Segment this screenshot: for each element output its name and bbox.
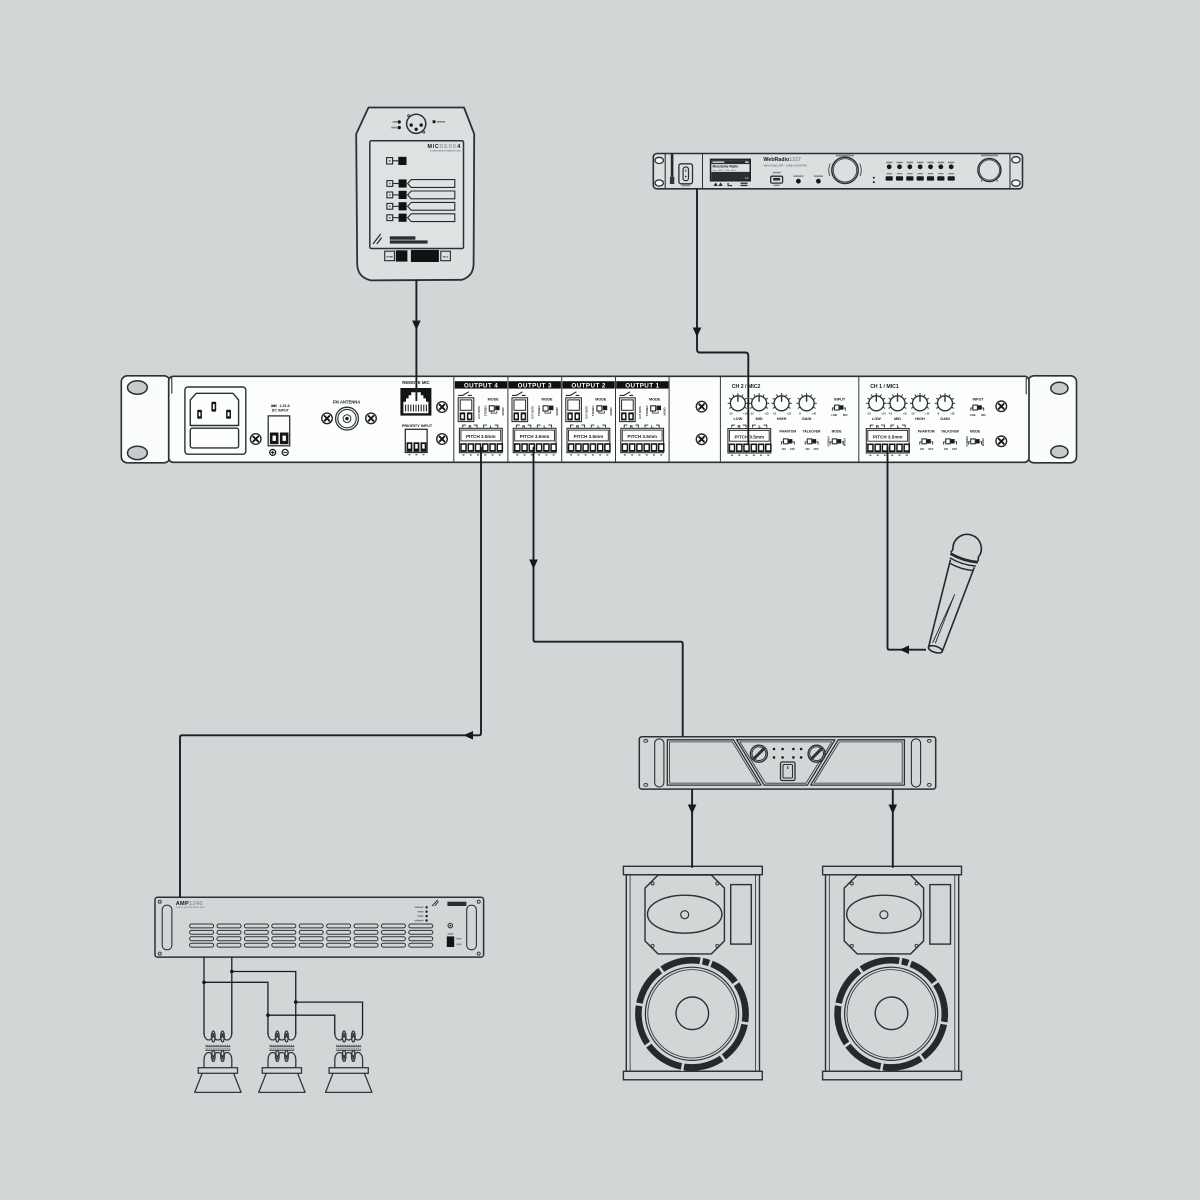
svg-text:MONO: MONO [501, 407, 505, 415]
svg-text:MIC: MIC [843, 413, 848, 417]
svg-text:4 ZONE SELECT REMOTE UNIT: 4 ZONE SELECT REMOTE UNIT [430, 149, 462, 152]
svg-text:LINE: LINE [831, 413, 837, 417]
svg-text:PUBLIC ADDRESS AMPLIFIER: PUBLIC ADDRESS AMPLIFIER [176, 906, 206, 909]
svg-text:HIGH: HIGH [777, 417, 787, 421]
svg-text:DC INPUT: DC INPUT [272, 408, 290, 412]
svg-text:OFF: OFF [814, 447, 820, 451]
svg-text:OUTPUT 3: OUTPUT 3 [518, 382, 552, 389]
svg-text:OUTPUT 2: OUTPUT 2 [571, 382, 605, 389]
svg-text:GAIN: GAIN [802, 417, 812, 421]
svg-text:MONO: MONO [842, 438, 846, 446]
svg-text:TALKOVER: TALKOVER [803, 430, 822, 434]
svg-text:Reg. 1224 - 7 Mile FM 6: Reg. 1224 - 7 Mile FM 6 [713, 170, 737, 172]
svg-text:Mountains Radio: Mountains Radio [713, 165, 739, 169]
svg-text:CH 2 / MIC2: CH 2 / MIC2 [732, 384, 761, 390]
svg-text:+15: +15 [743, 411, 748, 415]
svg-text:MODE: MODE [488, 398, 500, 402]
svg-text:-15: -15 [750, 411, 754, 415]
svg-text:FM ANTENNA: FM ANTENNA [333, 400, 361, 405]
svg-text:PHANTOM: PHANTOM [779, 430, 796, 434]
svg-text:-15: -15 [772, 411, 776, 415]
svg-text:ON: ON [805, 447, 809, 451]
svg-text:MID: MID [756, 417, 763, 421]
svg-text:ON: ON [782, 447, 786, 451]
svg-text:WebRadio1327: WebRadio1327 [763, 157, 801, 163]
svg-text:CH 1 / MIC1: CH 1 / MIC1 [870, 384, 899, 390]
svg-text:MODE: MODE [832, 430, 843, 434]
svg-text:INPUT: INPUT [834, 398, 846, 402]
svg-text:CHIME: CHIME [386, 256, 394, 258]
svg-text:STEREO: STEREO [483, 406, 487, 417]
svg-text:OUTPUT 1: OUTPUT 1 [625, 382, 659, 389]
svg-text:-15: -15 [729, 411, 733, 415]
svg-text:1/5: 1/5 [745, 176, 749, 180]
svg-text:+15: +15 [787, 411, 792, 415]
svg-text:OFF: OFF [790, 447, 796, 451]
svg-text:STEREO: STEREO [827, 436, 831, 447]
svg-text:+30: +30 [812, 411, 817, 415]
svg-text:EXT. MUTE: EXT. MUTE [478, 406, 481, 419]
svg-text:Web Radio DR - DAB+/UKW-RX: Web Radio DR - DAB+/UKW-RX [764, 163, 807, 167]
svg-text:PRIORITY INPUT: PRIORITY INPUT [402, 424, 433, 428]
svg-text:LOW: LOW [733, 417, 742, 421]
svg-text:OUTPUT 4: OUTPUT 4 [464, 382, 498, 389]
svg-text:+15: +15 [764, 411, 769, 415]
svg-text:MICDESK4: MICDESK4 [428, 144, 461, 150]
svg-text:TALK: TALK [443, 255, 449, 258]
